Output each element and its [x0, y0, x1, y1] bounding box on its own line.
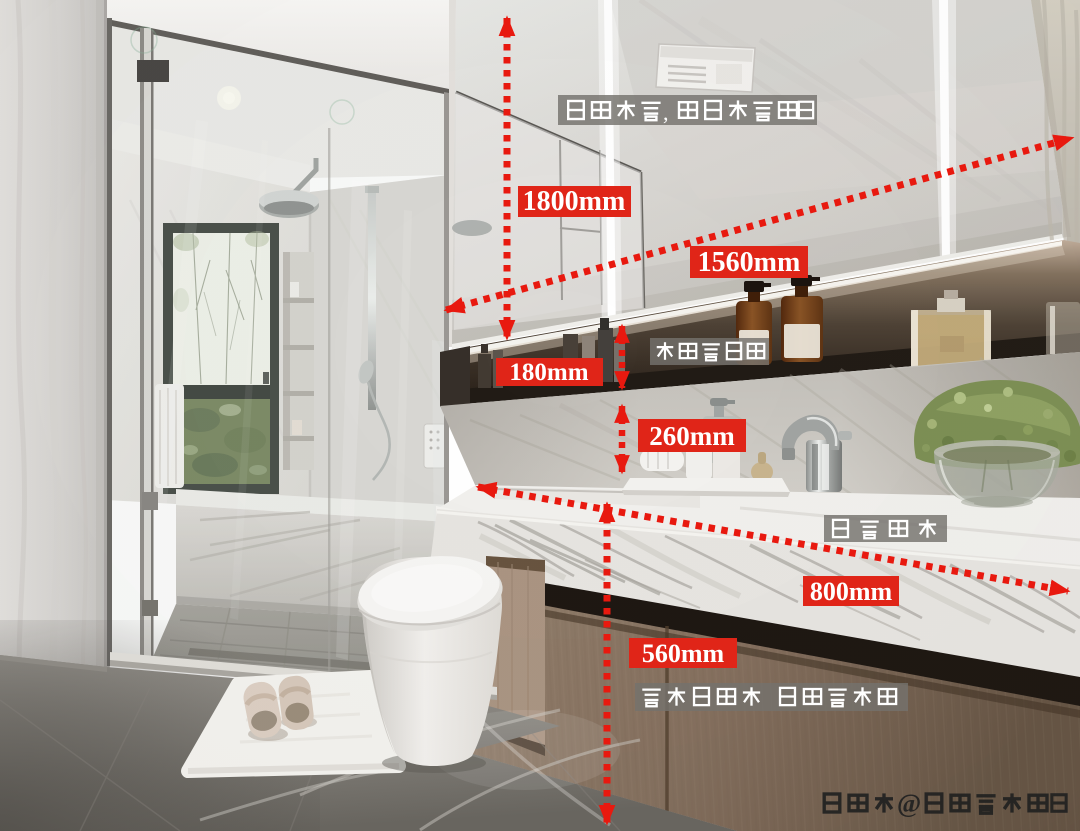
svg-text:260mm: 260mm: [649, 421, 735, 451]
svg-text:1560mm: 1560mm: [698, 247, 801, 278]
svg-text:1800mm: 1800mm: [523, 186, 626, 217]
svg-text:,: ,: [663, 100, 669, 125]
svg-text:800mm: 800mm: [810, 577, 893, 606]
svg-text:180mm: 180mm: [509, 359, 588, 386]
svg-text:560mm: 560mm: [642, 639, 725, 668]
